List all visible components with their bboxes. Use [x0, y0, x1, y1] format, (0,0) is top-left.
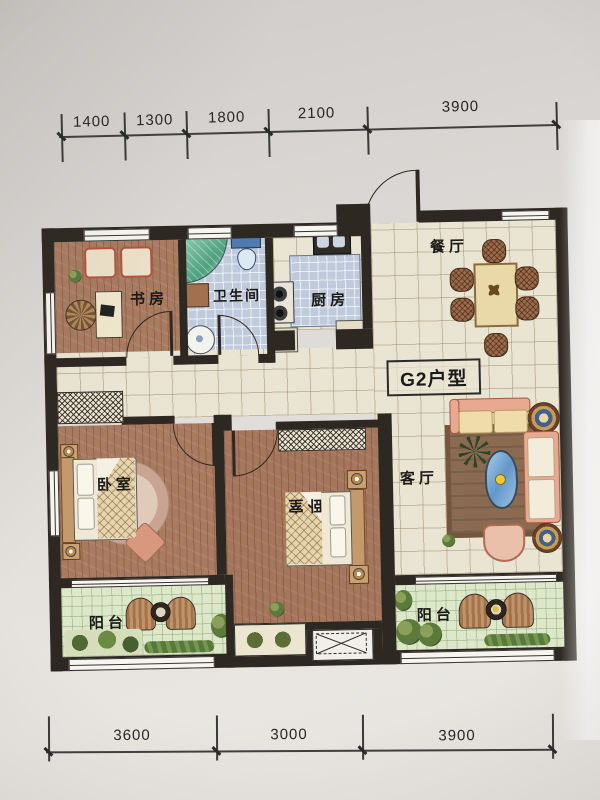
ac-platform: [312, 629, 374, 661]
wall-study-bottom: [44, 357, 126, 368]
study-label: 书房: [130, 287, 168, 309]
dimension-line: [46, 749, 554, 754]
balcony-left-hedge: [144, 640, 214, 653]
floor-plan: 书房 卫生间 厨房 餐厅 客厅 卧室 卧室 阳台 阳台 G2户型: [39, 192, 579, 683]
study-laptop: [100, 304, 115, 317]
study-armchair-2: [120, 246, 153, 278]
living-label: 客厅: [400, 467, 438, 489]
dim-top-1300: 1300: [136, 111, 174, 129]
balcony-right-hedge: [484, 633, 550, 646]
kitchen-label: 厨房: [311, 289, 349, 311]
dining-chair-left-1: [449, 268, 473, 292]
entry-door-arc: [363, 170, 417, 224]
dim-top-3900: 3900: [442, 98, 480, 116]
dim-top-2100: 2100: [298, 104, 336, 122]
unit-type-label: G2户型: [386, 358, 481, 396]
dining-chair-right-2: [515, 296, 539, 320]
wall-bath-bottom: [188, 355, 218, 365]
kitchen-sink-basin-1: [317, 236, 329, 248]
dining-chair-bottom: [484, 333, 508, 357]
dim-bottom-3600: 3600: [113, 727, 150, 744]
dining-chair-top: [482, 239, 506, 263]
dim-bottom-3000: 3000: [270, 726, 307, 743]
balcony-right-outer-window: [401, 649, 555, 664]
dim-bottom-3900: 3900: [438, 727, 475, 744]
kitchen-window: [294, 224, 338, 237]
dining-label: 餐厅: [430, 235, 468, 257]
dining-chair-left-2: [450, 298, 474, 322]
wall-hall-bedroom-left: [122, 416, 175, 425]
planter-box: [234, 623, 307, 657]
sofa-right-cushion-2: [528, 479, 556, 520]
wardrobe-hallway: [57, 391, 124, 424]
dining-window: [501, 210, 549, 221]
sofa-top-cushion-1: [458, 410, 492, 434]
photo-of-floor-plan: { "photo": { "paper_top": "#cdc9c6", "pa…: [0, 0, 600, 800]
study-window: [84, 228, 150, 241]
balcony-left-label: 阳台: [89, 611, 127, 633]
sofa-top-cushion-2: [493, 409, 527, 433]
bathroom-sink-drain: [196, 335, 203, 342]
wardrobe-bedroom-middle: [278, 428, 366, 452]
bedroom-middle-label: 卧室: [284, 495, 322, 517]
study-side-window: [45, 292, 56, 354]
dimension-line: [59, 124, 558, 138]
bedroom-left-label: 卧室: [97, 473, 135, 495]
dim-top-1400: 1400: [73, 113, 111, 131]
balcony-right-label: 阳台: [417, 603, 455, 625]
dimension-line-bottom: 3600 3000 3900: [30, 699, 590, 764]
paper-glare: [560, 120, 600, 740]
dim-top-1800: 1800: [208, 109, 246, 127]
ac-platform-cross-icon: [313, 630, 370, 657]
bathroom-window: [188, 227, 232, 240]
kitchen-sink-basin-2: [333, 235, 345, 247]
wall-kitchen-bottom-left: [268, 330, 295, 351]
wall-kitchen-bottom-right: [336, 329, 373, 350]
dining-chair-right-1: [514, 266, 538, 290]
sofa-right-cushion-1: [527, 437, 555, 478]
wall-entry-post: [336, 204, 363, 237]
bedroom-left-side-window: [49, 470, 60, 536]
balcony-left-outer-window: [69, 656, 215, 671]
bathroom-label: 卫生间: [213, 285, 261, 306]
study-armchair-1: [84, 247, 117, 279]
dimension-line-top: 1400 1300 1800 2100 3900: [29, 83, 591, 177]
